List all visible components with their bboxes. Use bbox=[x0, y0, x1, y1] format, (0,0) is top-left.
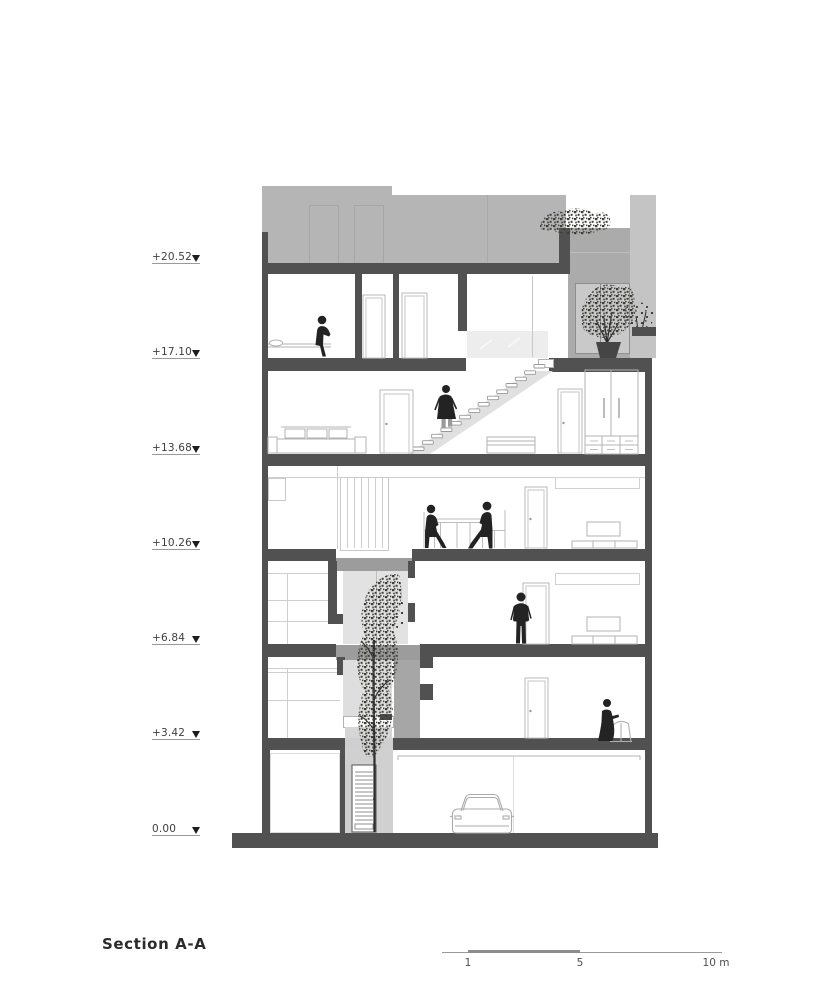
elevation-marker: +10.26 bbox=[152, 535, 200, 550]
elevation-label: +20.52 bbox=[152, 252, 192, 263]
parapet-plants bbox=[540, 208, 610, 234]
bench bbox=[487, 437, 535, 453]
louver-door bbox=[352, 765, 376, 832]
elevation-marker: 0.00 bbox=[152, 821, 200, 836]
level-triangle-icon bbox=[192, 731, 200, 738]
glass-reflection bbox=[480, 338, 520, 349]
elevation-label: +3.42 bbox=[152, 728, 185, 739]
elevation-label: +10.26 bbox=[152, 538, 192, 549]
car bbox=[450, 795, 514, 834]
elevation-marker: +17.10 bbox=[152, 344, 200, 359]
level-triangle-icon bbox=[192, 446, 200, 453]
section-linework bbox=[0, 0, 833, 1000]
level-triangle-icon bbox=[192, 541, 200, 548]
elevation-label: +6.84 bbox=[152, 633, 185, 644]
elevation-marker: +3.42 bbox=[152, 725, 200, 740]
person-at-crib-icon bbox=[598, 699, 619, 741]
tv-and-console bbox=[572, 522, 637, 644]
scale-segment-5-10 bbox=[580, 952, 722, 953]
scale-segment-0-1 bbox=[442, 952, 468, 953]
level-triangle-icon bbox=[192, 255, 200, 262]
garage-ceiling bbox=[398, 756, 640, 760]
drawing-title: Section A-A bbox=[102, 935, 206, 953]
scale-label-5: 5 bbox=[573, 957, 587, 969]
level-triangle-icon bbox=[192, 827, 200, 834]
scale-label-10m: 10 m bbox=[698, 957, 734, 969]
bed bbox=[268, 427, 366, 453]
person-seated-right-icon bbox=[468, 502, 493, 549]
architectural-section-sheet: +20.52 +17.10 +13.68 +10.26 +6.84 +3.42 … bbox=[0, 0, 833, 1000]
person-standing-icon bbox=[511, 593, 531, 644]
scale-label-1: 1 bbox=[461, 957, 475, 969]
elevation-marker: +6.84 bbox=[152, 630, 200, 645]
elevation-label: +17.10 bbox=[152, 347, 192, 358]
person-seated-left-icon bbox=[425, 505, 447, 548]
level-triangle-icon bbox=[192, 636, 200, 643]
elevation-marker: +20.52 bbox=[152, 249, 200, 264]
elevation-label: +13.68 bbox=[152, 443, 192, 454]
level-triangle-icon bbox=[192, 350, 200, 357]
elevation-marker: +13.68 bbox=[152, 440, 200, 455]
scale-segment-1-5 bbox=[468, 950, 580, 953]
wardrobe bbox=[585, 370, 638, 454]
door-knobs bbox=[385, 422, 564, 712]
person-sitting-top-floor-icon bbox=[316, 316, 331, 357]
terrace-side-plant bbox=[623, 303, 656, 336]
elevation-label: 0.00 bbox=[152, 824, 176, 835]
